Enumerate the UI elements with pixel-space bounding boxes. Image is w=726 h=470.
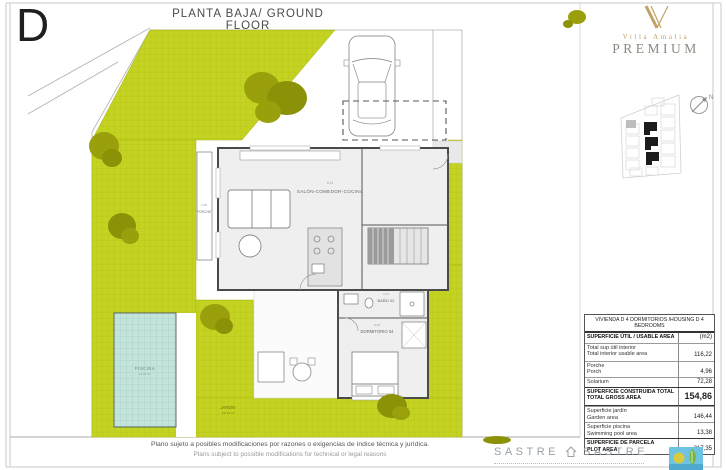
row-label-es: Porche <box>587 363 676 370</box>
sastre-logo: SASTRE SASTRE <box>494 446 648 458</box>
site-key-map <box>621 95 681 178</box>
pool-label: PISCINA <box>135 366 155 371</box>
row-value: 116,22 <box>678 344 714 361</box>
stairs <box>368 228 428 264</box>
car <box>344 36 400 136</box>
table-row: Superficie jardín Garden area 146,44 <box>585 406 714 422</box>
sastre-wordmark-right: SASTRE <box>583 446 648 458</box>
key-map-highlight-plot <box>626 120 636 128</box>
row-value: (m2) <box>678 333 714 342</box>
pool-dim: 13,38 m2 <box>139 372 151 376</box>
bathroom-label: BAÑO 02 <box>378 298 396 303</box>
tree <box>563 10 586 28</box>
bed <box>352 352 398 396</box>
porch-dim: 1,95 <box>201 203 207 207</box>
table-header: VIVIENDA D 4 DORMITORIOS /HOUSING D 4 BE… <box>585 315 714 332</box>
row-label-en: Swimming pool area <box>587 431 676 438</box>
disclaimer-es: Plano sujeto a posibles modificaciones p… <box>30 441 550 448</box>
sastre-color-logo-icon <box>669 447 703 470</box>
row-label-es: Solarium <box>587 379 676 386</box>
floor-plan-sheet: PISCINA 13,38 m2 <box>0 0 726 470</box>
variant-letter: D <box>16 0 49 52</box>
living-room-label: SALÓN-COMEDOR-COCINA <box>297 188 364 194</box>
swimming-pool: PISCINA 13,38 m2 <box>114 313 176 427</box>
living-room-dim: 6,11 <box>327 181 333 185</box>
table-row: Solarium 72,28 <box>585 377 714 387</box>
kitchen-island <box>308 228 342 286</box>
sheet-title: PLANTA BAJA/ GROUND FLOOR <box>148 8 348 32</box>
row-value: 72,28 <box>678 378 714 387</box>
table-row: Total sup útil interior Total interior u… <box>585 343 714 361</box>
wardrobe <box>402 322 426 348</box>
key-map-selected-units <box>644 122 659 165</box>
row-label-en: Porch <box>587 369 676 376</box>
garden-label: JARDÍN <box>220 405 235 410</box>
row-value: 146,44 <box>678 407 714 422</box>
pool-side-path <box>176 313 196 437</box>
row-label-es: Total sup útil interior <box>587 345 676 352</box>
row-label-en: Garden area <box>587 415 676 422</box>
area-table: VIVIENDA D 4 DORMITORIOS /HOUSING D 4 BE… <box>584 314 715 455</box>
table-row: Porche Porch 4,96 <box>585 361 714 377</box>
brand-tier: PREMIUM <box>600 41 712 57</box>
row-value: 13,38 <box>678 423 714 438</box>
sastre-tagline-rule <box>494 462 644 464</box>
garden-dim: 146,44 m2 <box>221 411 235 415</box>
brand-name: Villa Amalia <box>600 33 712 41</box>
row-label-es: SUPERFICIE ÚTIL / USABLE AREA <box>587 334 676 340</box>
row-label-en: Total interior usable area <box>587 351 676 358</box>
row-value: 154,86 <box>678 388 714 405</box>
sastre-wordmark-left: SASTRE <box>494 446 559 458</box>
kitchen-counter <box>240 151 340 160</box>
bedroom-label: DORMITORIO 04 <box>361 329 395 334</box>
porch-label: PORCHE <box>197 210 212 214</box>
row-label-es: Superficie piscina <box>587 424 676 431</box>
table-row: SUPERFICIE ÚTIL / USABLE AREA (m2) <box>585 332 714 342</box>
bathroom-dim: 2,21 <box>383 292 389 296</box>
disclaimer-en: Plans subject to possible modifications … <box>30 451 550 458</box>
row-label-es: Superficie jardín <box>587 408 676 415</box>
row-label-en: TOTAL GROSS AREA <box>587 395 676 401</box>
sastre-house-icon <box>565 446 577 458</box>
north-label: N <box>709 95 713 101</box>
sofa <box>228 190 290 228</box>
row-value: 4,96 <box>678 362 714 377</box>
brand-logo: Villa Amalia PREMIUM <box>600 1 712 57</box>
north-compass-icon: N <box>691 95 714 114</box>
bedroom-dim: 9,40 <box>374 323 380 327</box>
table-row: SUPERFICIE CONSTRUIDA TOTAL TOTAL GROSS … <box>585 387 714 406</box>
table-row: Superficie piscina Swimming pool area 13… <box>585 422 714 438</box>
round-table <box>239 235 261 257</box>
